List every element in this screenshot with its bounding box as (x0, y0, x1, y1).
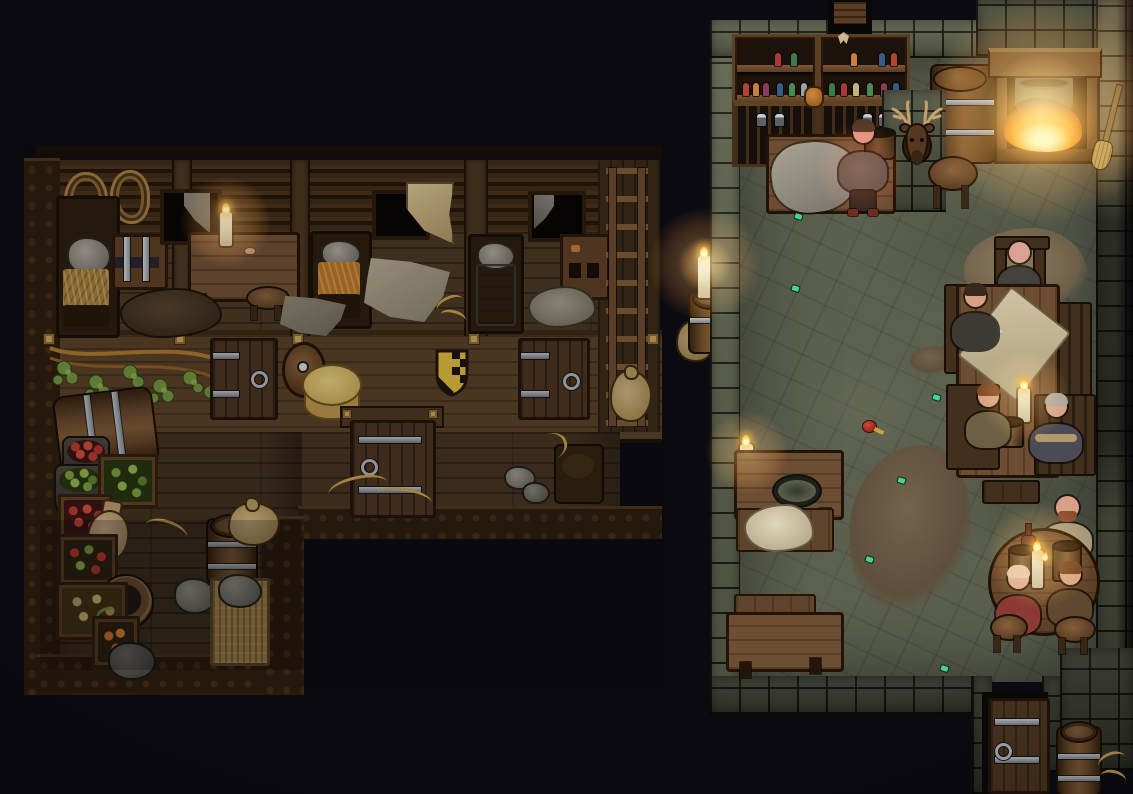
jar-icon (757, 114, 766, 126)
stone (522, 482, 550, 504)
straw-wisp-icon (531, 429, 571, 465)
candle-flame-icon (222, 203, 230, 214)
chest-band (115, 257, 159, 268)
stone (218, 574, 262, 608)
shelf-bottle (775, 53, 781, 66)
sack[interactable] (610, 370, 652, 422)
grey-blanket (476, 264, 516, 326)
fur-drape (744, 504, 814, 552)
chest-strap-icon (143, 237, 149, 281)
character-patron-grey-hair[interactable] (1030, 396, 1082, 462)
stone (108, 642, 156, 680)
chest-strap-icon (124, 237, 130, 281)
shelf-bottle (867, 83, 873, 96)
candle-flame-icon (1042, 552, 1048, 561)
stool[interactable] (990, 614, 1024, 652)
door-hinge-icon (521, 353, 549, 359)
sack[interactable] (228, 502, 280, 546)
stool[interactable] (246, 286, 286, 320)
shelf-bottle (789, 83, 795, 96)
door-hinge-icon (521, 391, 549, 397)
pot-contents (59, 468, 101, 492)
broom-head (1090, 139, 1114, 171)
straw-wisps (328, 466, 440, 510)
orange-straw (318, 262, 360, 296)
cauldron-mouth (1019, 77, 1069, 89)
candle-flame-icon (742, 435, 750, 446)
shelf-bottle (891, 53, 897, 66)
shelf-bottle (851, 53, 857, 66)
straw-wisp-icon (142, 514, 191, 549)
tavern-south-wall (710, 676, 978, 714)
candle-flame-icon (1033, 541, 1041, 552)
character-patron-brown-hair[interactable] (966, 386, 1010, 448)
shelf-bottle (763, 83, 769, 96)
stool-leg (275, 306, 281, 320)
cabinet-niche (569, 263, 581, 278)
serving-dish[interactable] (772, 474, 822, 508)
guest-room-door[interactable] (518, 338, 590, 420)
straw-wisp-icon (1099, 767, 1128, 789)
post-mark (648, 334, 658, 344)
crate-contents (64, 540, 112, 580)
game-scene: Hop vine hanging on the wall Yellow-and-… (0, 0, 1133, 794)
shelf-board (823, 65, 905, 72)
barrel-hoop-icon (1058, 776, 1100, 781)
door-hinge-icon (995, 719, 1039, 725)
barrel-top-arc (935, 68, 985, 90)
candle (1018, 388, 1030, 422)
jar-icon (775, 114, 784, 126)
stool-leg (1014, 636, 1020, 652)
table-leg (810, 658, 821, 674)
stool-leg (934, 186, 940, 208)
orange-jug (804, 86, 824, 108)
shelf-bottle (841, 83, 847, 96)
mouse[interactable] (244, 247, 256, 255)
door-hinge-icon (359, 437, 421, 443)
stool[interactable] (1054, 616, 1092, 654)
candle-flame-icon (700, 247, 708, 258)
straw-wisps (538, 422, 568, 470)
bench[interactable] (982, 480, 1040, 504)
door-ring-icon (563, 373, 580, 390)
stool-leg (251, 306, 257, 320)
post-mark (469, 334, 479, 344)
door-hinge-icon (213, 391, 239, 397)
stool-leg (1081, 638, 1087, 654)
south-entrance-door[interactable] (988, 698, 1050, 794)
table-leg (740, 662, 751, 678)
mantel-beam (988, 48, 1102, 78)
cheese-top (302, 364, 362, 406)
torn-curtain (184, 193, 210, 233)
bed-footer (63, 305, 109, 327)
shelf-bottle (753, 83, 759, 96)
character-patron-dark-hair[interactable] (952, 286, 998, 350)
stool-leg (1059, 638, 1065, 654)
stool-leg (994, 636, 1000, 652)
straw-wisp-icon (439, 307, 468, 328)
candle (220, 212, 232, 246)
shelf-bottle (853, 83, 859, 96)
shelf-bottle (791, 53, 797, 66)
post-mark (429, 410, 437, 418)
hearth-post (997, 69, 1007, 161)
door-hinge-icon (213, 353, 239, 359)
straw-wisps (144, 510, 194, 552)
straw-wisps (1098, 742, 1132, 792)
dish-inner (778, 480, 816, 502)
shelf-bottle (829, 83, 835, 96)
bed-grey[interactable] (468, 234, 524, 334)
shelf-bottle (879, 53, 885, 66)
barrel-hoop-icon (208, 564, 256, 569)
torn-curtain (534, 195, 554, 229)
shelf-board (737, 65, 813, 72)
broom-stick (1102, 85, 1122, 146)
cabinet-niche (587, 263, 599, 278)
bed-straw[interactable] (56, 196, 120, 338)
door-ring-icon (995, 743, 1012, 760)
shelf-bottle (777, 83, 783, 96)
entry-barrel[interactable] (1056, 726, 1102, 794)
bar-stool[interactable] (928, 156, 974, 208)
cabinet-item (571, 245, 580, 252)
door-ring-icon (251, 371, 268, 388)
stool-leg (962, 186, 968, 208)
straw-wisp-icon (375, 484, 434, 514)
post-mark (343, 410, 351, 418)
shelf-bottle (743, 83, 749, 96)
guest-room-door[interactable] (210, 338, 278, 420)
barrel-top (1060, 721, 1098, 743)
wooden-steps (834, 2, 866, 24)
straw-wisps (436, 290, 470, 330)
barrel-hoop-icon (1058, 754, 1100, 759)
candle-flame-icon (1020, 379, 1028, 390)
straw-bedding (63, 269, 109, 307)
character-innkeeper[interactable] (839, 122, 887, 216)
heraldic-shield: Yellow-and-black heraldic shield (434, 348, 470, 398)
coat-collar (1035, 434, 1077, 442)
